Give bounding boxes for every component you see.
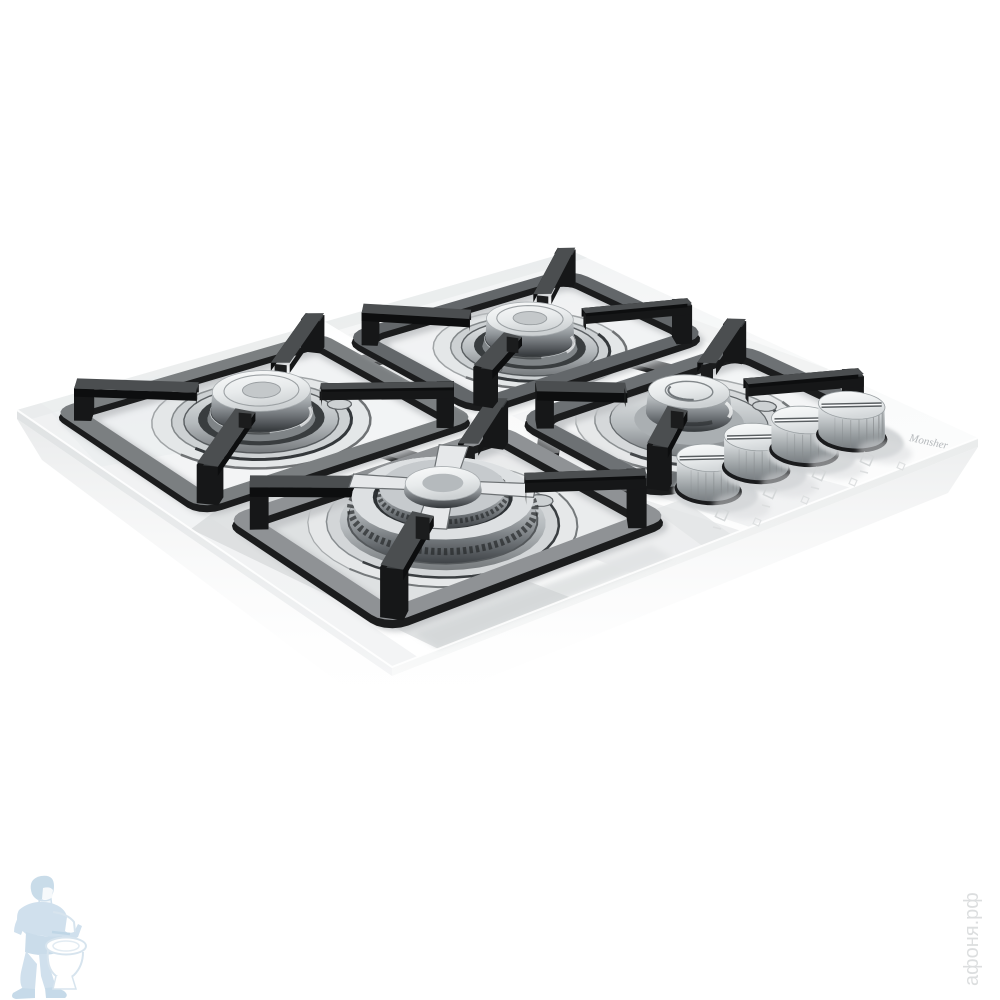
svg-text:афоня.рф: афоня.рф — [961, 892, 983, 986]
